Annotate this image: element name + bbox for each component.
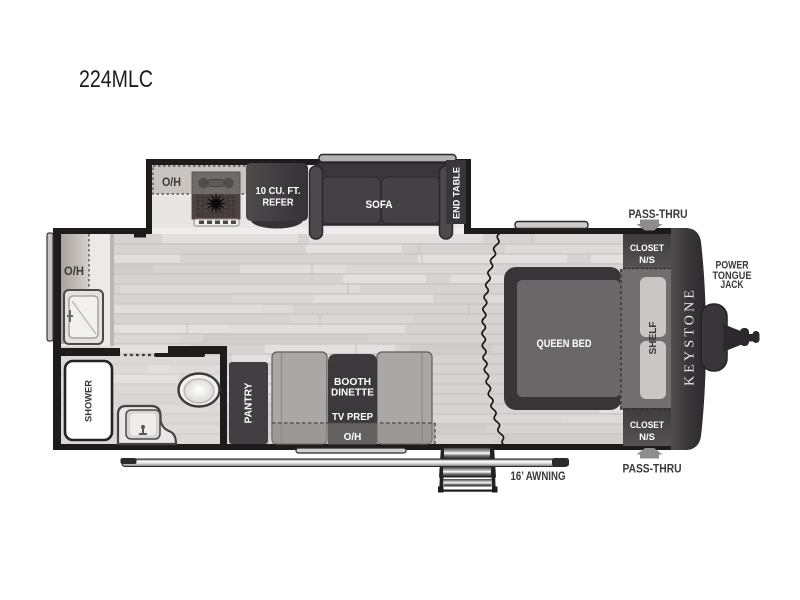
svg-text:O/H: O/H [64,264,84,278]
svg-text:224MLC: 224MLC [79,66,153,93]
svg-text:10 CU. FT.: 10 CU. FT. [256,186,301,197]
svg-text:DINETTE: DINETTE [331,388,374,399]
svg-text:SHOWER: SHOWER [84,380,95,422]
svg-text:JACK: JACK [721,279,744,291]
svg-text:16’ AWNING: 16’ AWNING [511,469,566,483]
svg-text:REFER: REFER [263,198,295,209]
svg-text:PASS-THRU: PASS-THRU [623,462,682,476]
svg-text:QUEEN BED: QUEEN BED [537,338,592,350]
svg-text:N/S: N/S [639,432,655,443]
svg-text:N/S: N/S [639,255,655,266]
svg-text:END TABLE: END TABLE [452,167,462,219]
svg-text:PANTRY: PANTRY [244,382,255,423]
svg-text:SOFA: SOFA [366,199,393,211]
svg-text:PASS-THRU: PASS-THRU [629,207,688,221]
svg-text:SHELF: SHELF [647,321,659,355]
svg-text:BOOTH: BOOTH [334,377,371,388]
svg-text:TV PREP: TV PREP [332,412,373,423]
svg-text:CLOSET: CLOSET [630,243,664,254]
svg-text:O/H: O/H [162,175,181,189]
svg-text:O/H: O/H [344,432,362,443]
svg-text:CLOSET: CLOSET [630,420,664,431]
